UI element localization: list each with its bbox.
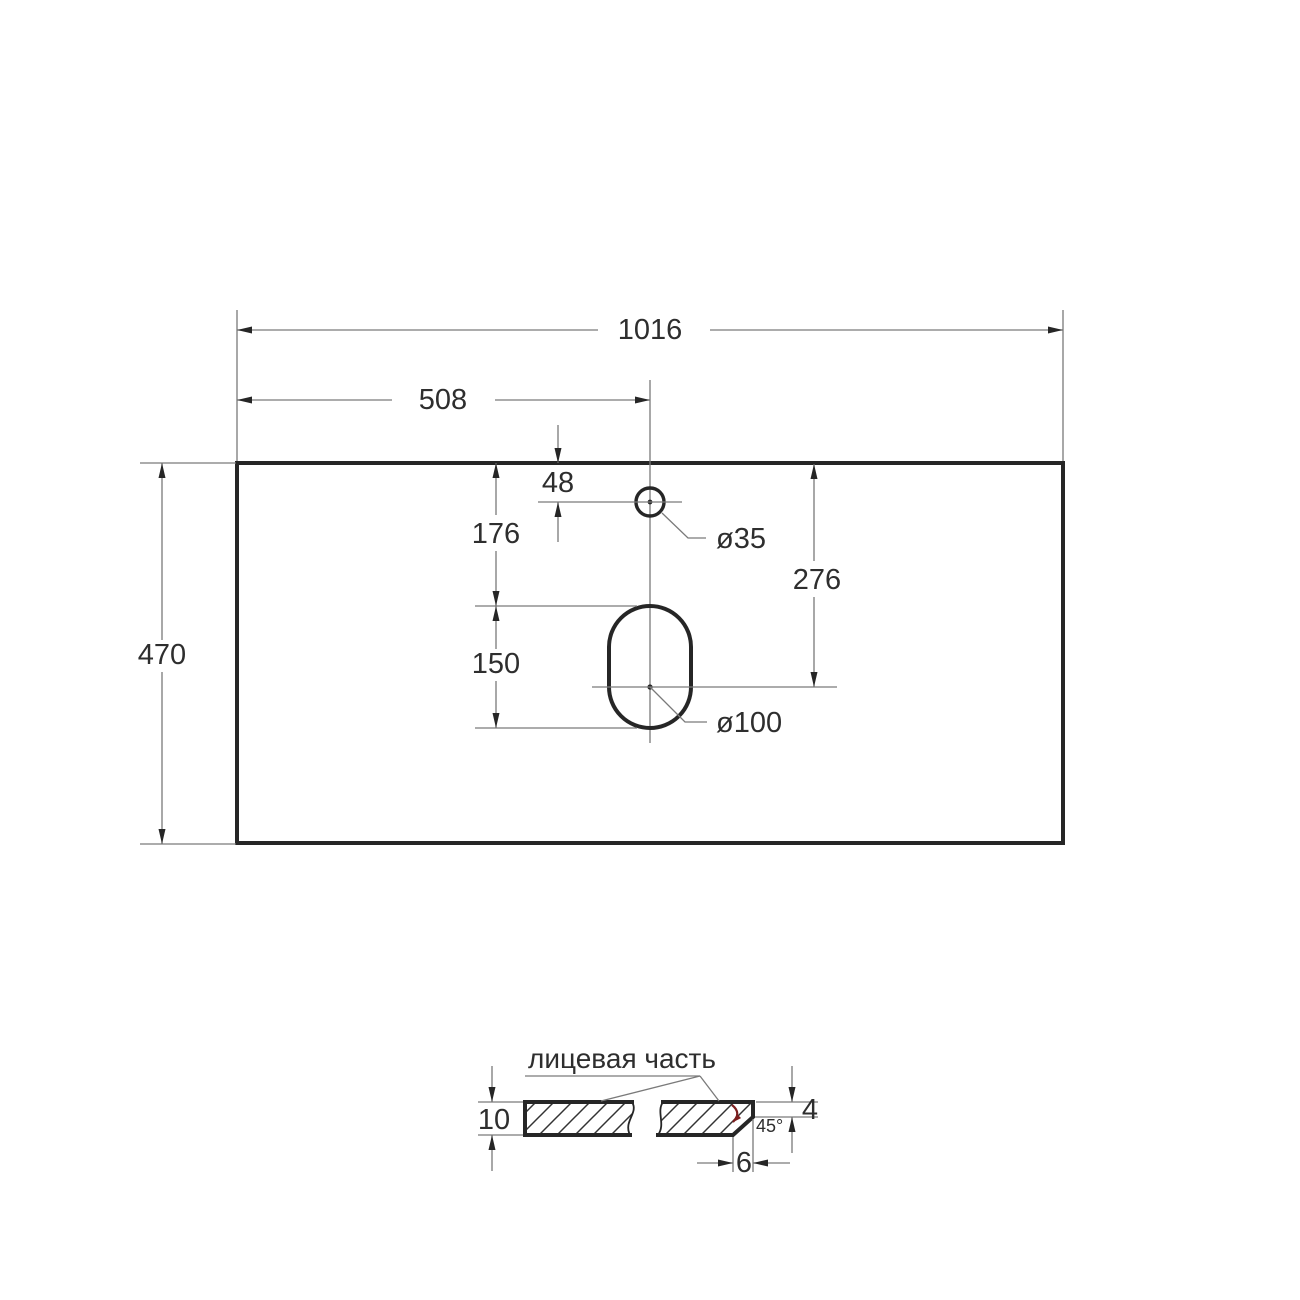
dim-label-470: 470 <box>138 639 186 671</box>
drawing-page: 1016 508 470 48 176 <box>0 0 1300 1300</box>
face-label-group: лицевая часть <box>525 1043 719 1101</box>
technical-drawing-canvas: 1016 508 470 48 176 <box>0 0 1300 1300</box>
dim-drain-center-offset: 276 <box>793 464 841 687</box>
leader-drain-diameter: ø100 <box>650 687 782 739</box>
face-label-leader-left <box>601 1076 700 1101</box>
section-view: лицевая часть 10 4 45° <box>478 1043 818 1179</box>
dim-label-d100: ø100 <box>716 707 782 739</box>
dim-label-176: 176 <box>472 518 520 550</box>
dim-thickness: 10 <box>478 1066 523 1171</box>
dim-label-48: 48 <box>542 467 574 499</box>
dim-label-1016: 1016 <box>618 314 683 346</box>
leader-faucet-diameter: ø35 <box>662 513 766 555</box>
face-label-leader-right <box>700 1076 719 1101</box>
plan-view: 1016 508 470 48 176 <box>138 310 1063 844</box>
dim-edge-thickness: 4 <box>755 1066 818 1153</box>
section-left-slab-hatch <box>525 1102 634 1135</box>
dim-drain-length: 150 <box>472 606 520 728</box>
dim-label-45deg: 45° <box>756 1116 783 1136</box>
face-label: лицевая часть <box>528 1043 716 1074</box>
dim-label-d35: ø35 <box>716 523 766 555</box>
dim-faucet-offset: 48 <box>542 425 574 542</box>
dim-label-10: 10 <box>478 1104 510 1136</box>
dim-drain-top-offset: 176 <box>472 463 520 606</box>
dim-label-276: 276 <box>793 564 841 596</box>
dim-center-offset: 508 <box>237 384 650 416</box>
dim-label-150: 150 <box>472 648 520 680</box>
dim-label-6: 6 <box>736 1147 752 1179</box>
dim-label-508: 508 <box>419 384 467 416</box>
dim-label-4: 4 <box>802 1094 818 1126</box>
dim-overall-depth: 470 <box>138 463 236 844</box>
